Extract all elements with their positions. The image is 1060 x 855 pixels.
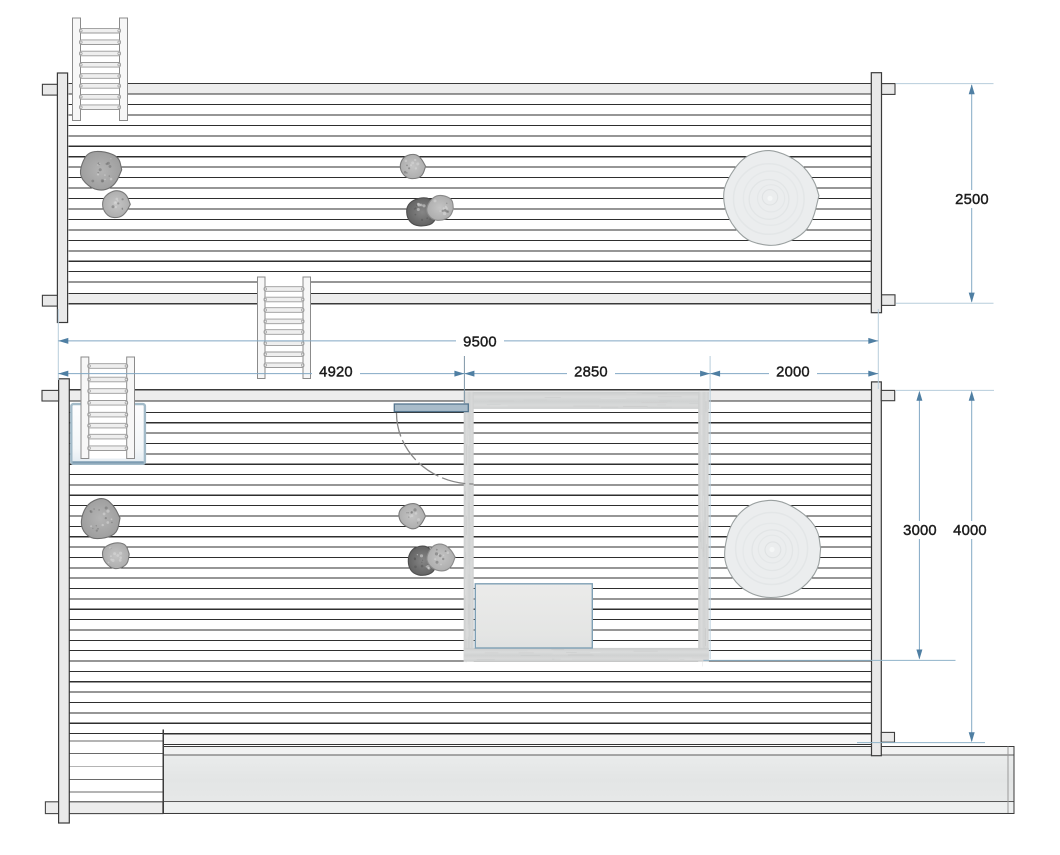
svg-text:2000: 2000 xyxy=(776,365,810,381)
svg-text:3000: 3000 xyxy=(903,523,937,539)
svg-text:9500: 9500 xyxy=(463,334,497,350)
svg-text:2500: 2500 xyxy=(955,192,989,208)
svg-text:2850: 2850 xyxy=(574,365,608,381)
svg-text:4000: 4000 xyxy=(953,523,987,539)
svg-text:4920: 4920 xyxy=(319,365,353,381)
